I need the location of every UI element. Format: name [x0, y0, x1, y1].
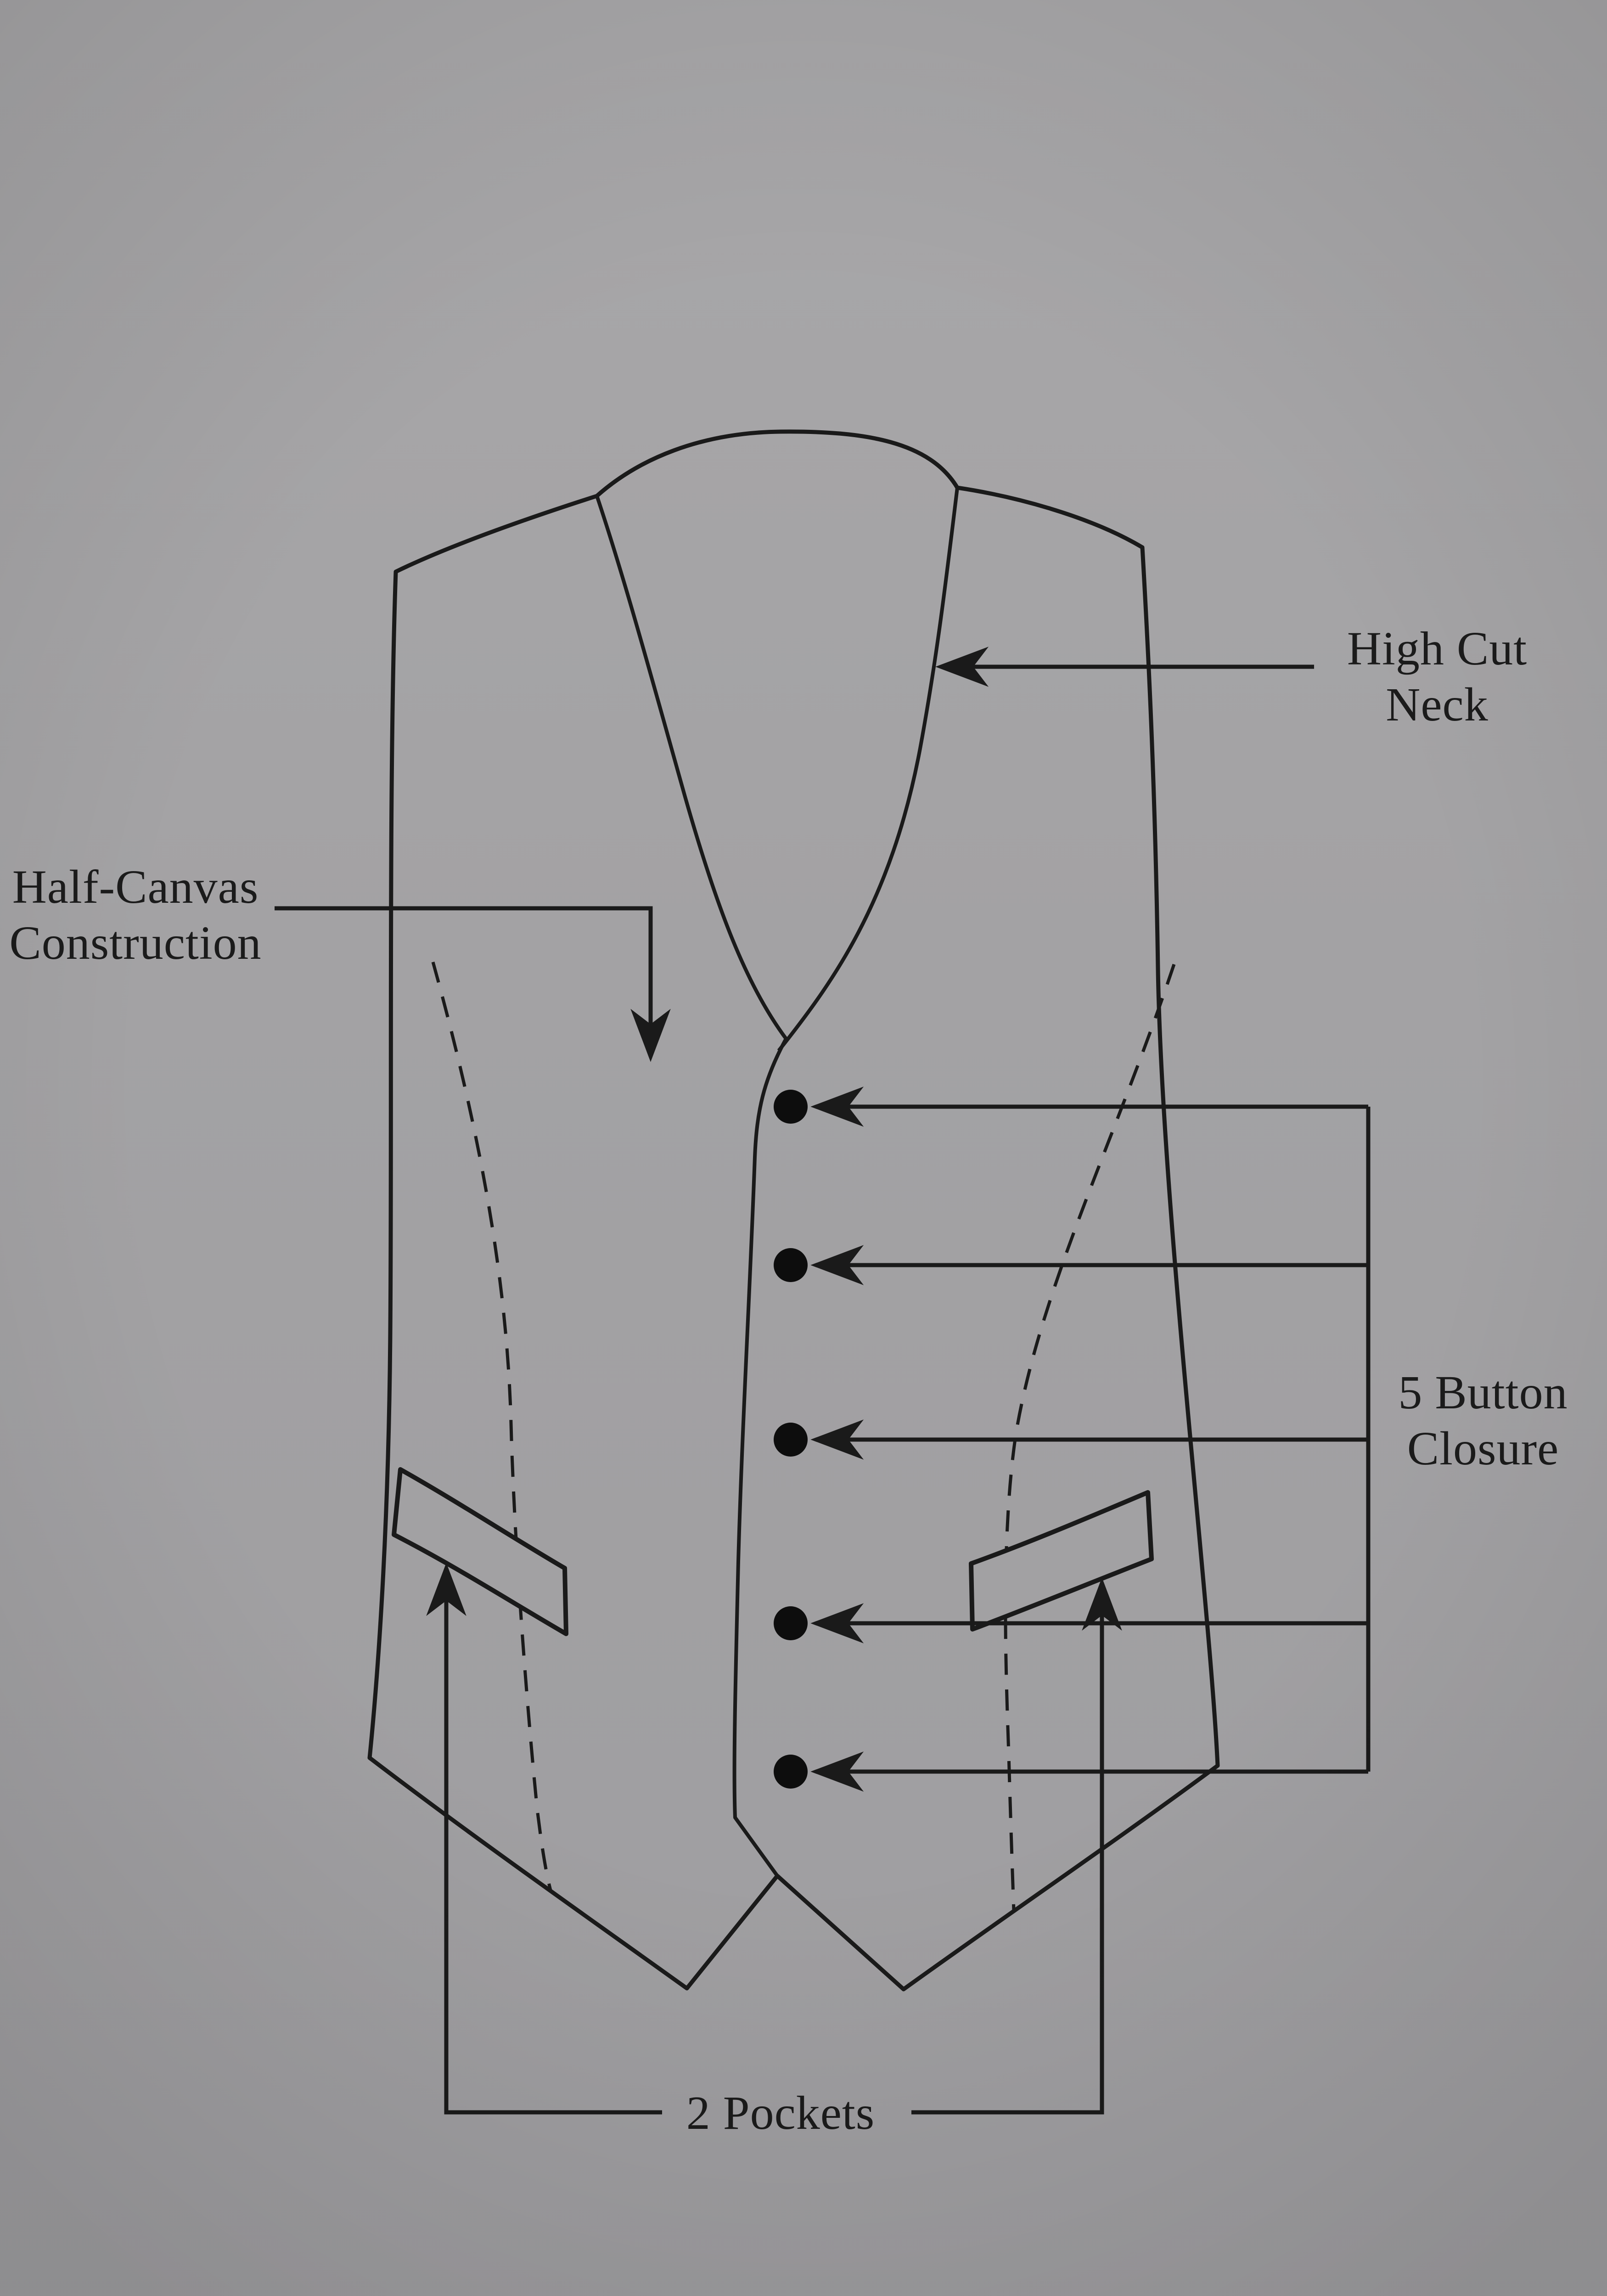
left-dart-dashed-line: [433, 962, 551, 1892]
right-pocket-arrow-line: [911, 1613, 1102, 2112]
button-1: [774, 1090, 808, 1124]
vest-line-drawing: [0, 0, 1607, 2296]
left-pocket-arrow-line: [446, 1600, 662, 2112]
left-lapel-and-placket-edge: [597, 496, 786, 1876]
pockets-arrows: [431, 1569, 1118, 2112]
five-button-closure-label-line2: Closure: [1368, 1421, 1598, 1477]
high-cut-neck-arrow: [941, 651, 1314, 682]
left-pocket-welt: [394, 1469, 566, 1634]
half-canvas-label-line1: Half-Canvas: [0, 859, 275, 915]
five-button-closure-label-line1: 5 Button: [1368, 1365, 1598, 1421]
high-cut-neck-label: High Cut Neck: [1299, 621, 1575, 732]
button-4: [774, 1606, 808, 1640]
high-cut-neck-label-line1: High Cut: [1299, 621, 1575, 677]
half-canvas-arrow-line: [275, 908, 651, 1027]
half-canvas-label-line2: Construction: [0, 915, 275, 971]
button-3: [774, 1423, 808, 1457]
right-lapel-edge: [779, 488, 957, 1051]
high-cut-neck-label-line2: Neck: [1299, 677, 1575, 733]
button-arrows: [816, 1091, 1368, 1787]
half-canvas-label: Half-Canvas Construction: [0, 859, 275, 971]
five-button-closure-label: 5 Button Closure: [1368, 1365, 1598, 1476]
two-pockets-label-text: 2 Pockets: [643, 2085, 918, 2141]
diagram-background: High Cut Neck Half-Canvas Construction 5…: [0, 0, 1607, 2296]
two-pockets-label: 2 Pockets: [643, 2085, 918, 2141]
button-5: [774, 1755, 808, 1789]
half-canvas-arrow: [275, 908, 666, 1056]
button-2: [774, 1248, 808, 1282]
right-pocket-welt: [971, 1492, 1152, 1629]
